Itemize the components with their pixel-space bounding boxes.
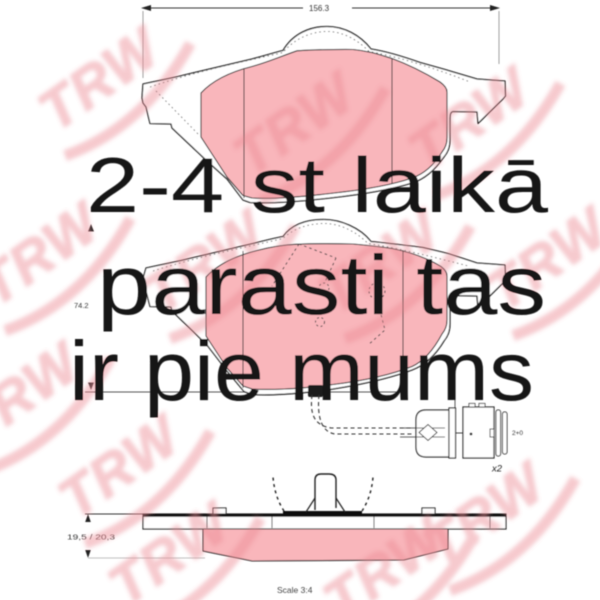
svg-text:74.2: 74.2 [74, 301, 89, 310]
svg-text:ir pie mums: ir pie mums [69, 324, 534, 418]
svg-text:Scale 3:4: Scale 3:4 [277, 585, 313, 595]
svg-text:parasti tas: parasti tas [97, 238, 546, 332]
svg-text:2-4 st laikā: 2-4 st laikā [86, 141, 549, 229]
svg-text:2+0: 2+0 [512, 430, 523, 437]
svg-text:156.3: 156.3 [309, 4, 330, 13]
